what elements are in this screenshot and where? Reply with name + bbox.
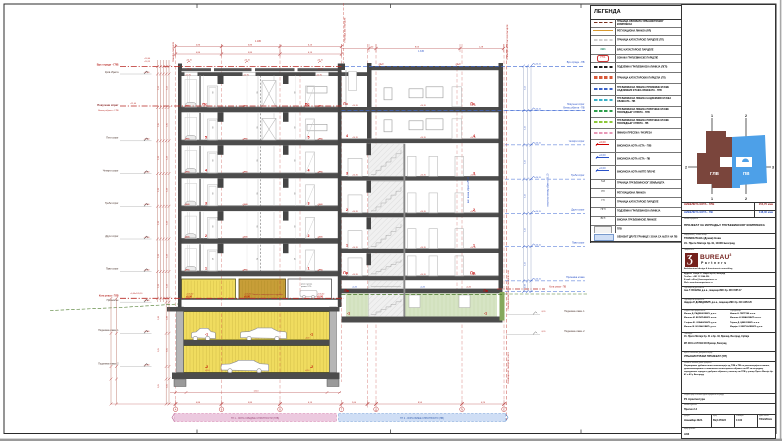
svg-text:-1: -1 <box>347 312 350 316</box>
svg-text:+14,35: +14,35 <box>420 274 426 276</box>
svg-text:5,85: 5,85 <box>248 402 253 404</box>
svg-text:±0,00: ±0,00 <box>244 296 251 299</box>
svg-text:+17,85: +17,85 <box>317 204 323 206</box>
svg-text:Врх ограде - ГЛВ: Врх ограде - ГЛВ <box>97 63 119 67</box>
svg-text:8: 8 <box>294 90 296 94</box>
svg-text:4: 4 <box>346 134 348 138</box>
svg-text:-0,45: -0,45 <box>420 287 426 289</box>
svg-text:+12,80: +12,80 <box>144 237 150 239</box>
svg-text:+24,40: +24,40 <box>144 58 151 60</box>
svg-text:+17,85: +17,85 <box>317 171 323 173</box>
svg-text:ГРАНИЦА КАТАСТАРСКЕ ПАРЦЕЛЕ: ГРАНИЦА КАТАСТАРСКЕ ПАРЦЕЛЕ <box>506 24 509 60</box>
svg-text:+14,35: +14,35 <box>470 175 476 177</box>
svg-text:+22,95: +22,95 <box>243 74 249 76</box>
svg-text:±0,00: ±0,00 <box>317 296 324 299</box>
svg-text:2: 2 <box>745 114 747 118</box>
svg-text:+24,15: +24,15 <box>535 244 542 246</box>
svg-text:+24,15: +24,15 <box>535 177 542 179</box>
svg-text:3,05: 3,05 <box>158 384 160 388</box>
svg-text:-1: -1 <box>310 333 313 337</box>
svg-text:4,86: 4,86 <box>196 402 201 404</box>
svg-text:Кота улаза - ПВ: Кота улаза - ПВ <box>549 287 566 289</box>
svg-text:8: 8 <box>212 159 214 163</box>
svg-text:+14,35: +14,35 <box>470 247 476 249</box>
svg-text:Пр: Пр <box>343 271 349 275</box>
svg-text:8: 8 <box>294 192 296 196</box>
svg-text:+24,15: +24,15 <box>144 61 151 63</box>
svg-text:3,10: 3,10 <box>525 262 527 266</box>
svg-text:Пети спрат: Пети спрат <box>106 137 119 140</box>
svg-text:Кота улаза - ГЛВ: Кота улаза - ГЛВ <box>99 295 119 298</box>
svg-text:+17,85: +17,85 <box>242 171 248 173</box>
svg-text:2: 2 <box>205 234 207 238</box>
svg-text:+12,80: +12,80 <box>144 300 150 302</box>
svg-text:+105,30: +105,30 <box>244 294 252 296</box>
svg-text:3,10: 3,10 <box>525 126 527 130</box>
svg-text:8: 8 <box>212 90 214 94</box>
svg-text:+17,85: +17,85 <box>184 138 190 140</box>
svg-text:ГРАНИЦА КАТАСТАРСКЕ ПАРЦЕЛЕ 24: ГРАНИЦА КАТАСТАРСКЕ ПАРЦЕЛЕ 2401 <box>507 269 510 310</box>
svg-text:+12,80: +12,80 <box>144 204 150 206</box>
svg-text:3,28: 3,28 <box>167 156 169 160</box>
svg-text:Трећи спрат: Трећи спрат <box>571 174 585 177</box>
svg-text:1: 1 <box>205 267 207 271</box>
svg-text:+17,85: +17,85 <box>242 237 248 239</box>
svg-text:3,28: 3,28 <box>158 254 160 258</box>
svg-text:3,10: 3,10 <box>525 228 527 232</box>
svg-text:ПВ: ПВ <box>743 171 750 176</box>
svg-text:6,15: 6,15 <box>308 44 313 46</box>
svg-text:4,86: 4,86 <box>196 52 201 54</box>
svg-text:6,15: 6,15 <box>308 402 313 404</box>
svg-text:-0,45: -0,45 <box>352 287 358 289</box>
svg-text:-3,20: -3,20 <box>541 311 545 313</box>
svg-text:3,28: 3,28 <box>158 188 160 192</box>
svg-text:+0,00=105,30: +0,00=105,30 <box>130 293 143 295</box>
svg-text:1: 1 <box>346 244 348 248</box>
svg-text:8: 8 <box>212 192 214 196</box>
svg-text:2,60: 2,60 <box>352 402 357 404</box>
svg-text:ГРАНИЦА ПАРЦЕЛЕ: ГРАНИЦА ПАРЦЕЛЕ <box>172 41 175 62</box>
svg-text:рампа 12%: рампа 12% <box>301 286 312 288</box>
svg-text:+17,85: +17,85 <box>242 204 248 206</box>
svg-text:+14,35: +14,35 <box>470 105 476 107</box>
svg-text:4: 4 <box>205 169 207 173</box>
svg-text:+14,35: +14,35 <box>470 211 476 213</box>
svg-text:3: 3 <box>346 171 348 175</box>
svg-text:Приземље: Приземље <box>107 299 120 302</box>
svg-text:Пв: Пв <box>483 289 488 293</box>
svg-text:+14,35: +14,35 <box>352 175 358 177</box>
svg-text:Трећи спрат: Трећи спрат <box>105 202 119 205</box>
svg-text:+24,15: +24,15 <box>535 64 542 66</box>
svg-text:±0,00: ±0,00 <box>186 296 193 299</box>
svg-text:2: 2 <box>346 208 348 212</box>
svg-text:3,28: 3,28 <box>158 221 160 225</box>
svg-text:+14,35: +14,35 <box>352 137 358 139</box>
svg-text:5: 5 <box>308 136 310 140</box>
svg-text:8: 8 <box>294 126 296 130</box>
svg-text:1: 1 <box>308 267 310 271</box>
svg-text:2,95: 2,95 <box>167 123 169 127</box>
svg-text:5,85: 5,85 <box>248 52 253 54</box>
svg-text:+14,35: +14,35 <box>420 175 426 177</box>
svg-text:ГРАНИЦА КАТ. ПАРЦЕЛЕ: ГРАНИЦА КАТ. ПАРЦЕЛЕ <box>343 17 346 42</box>
svg-text:3,10: 3,10 <box>525 160 527 164</box>
svg-text:+12,80: +12,80 <box>144 269 150 271</box>
svg-text:+17,85: +17,85 <box>184 204 190 206</box>
svg-text:+14,35: +14,35 <box>352 211 358 213</box>
svg-text:+22,95: +22,95 <box>186 68 192 70</box>
svg-text:+17,85: +17,85 <box>184 237 190 239</box>
svg-text:1.345: 1.345 <box>418 51 424 53</box>
svg-text:ГРАНИЦА КАТ. ПАРЦЕЛЕ 2401/1: ГРАНИЦА КАТ. ПАРЦЕЛЕ 2401/1 <box>507 351 510 384</box>
svg-text:Врх ограде - ПВ: Врх ограде - ПВ <box>567 61 585 64</box>
svg-text:3,28: 3,28 <box>167 188 169 192</box>
svg-text:8: 8 <box>294 224 296 228</box>
svg-text:Венац објекта - ГЛВ: Венац објекта - ГЛВ <box>98 109 119 112</box>
svg-text:+22,95: +22,95 <box>244 68 250 70</box>
svg-text:1.180: 1.180 <box>255 40 262 43</box>
svg-text:5,85: 5,85 <box>248 44 253 46</box>
svg-text:+12,80: +12,80 <box>144 171 150 173</box>
svg-text:Четврти спрат: Четврти спрат <box>103 169 120 172</box>
svg-text:+12,80: +12,80 <box>144 331 150 333</box>
svg-text:+24,15: +24,15 <box>535 211 542 213</box>
svg-text:3,53: 3,53 <box>158 86 160 90</box>
svg-text:ГП 2 - ЗОНА ВИШЕ СПРАТНОСТИ: ГП 2 - ЗОНА ВИШЕ СПРАТНОСТИ (ПВ) <box>400 417 444 420</box>
svg-text:+17,85: +17,85 <box>184 269 190 271</box>
svg-text:-6,10: -6,10 <box>305 370 309 372</box>
svg-text:-3,20: -3,20 <box>541 331 545 333</box>
svg-text:4: 4 <box>308 169 310 173</box>
svg-text:-1: -1 <box>205 333 208 337</box>
svg-text:-1: -1 <box>484 312 487 316</box>
svg-text:вис. венац објекта 25,10: вис. венац објекта 25,10 <box>467 176 470 203</box>
svg-text:+24,15: +24,15 <box>535 108 542 110</box>
svg-text:+17,85: +17,85 <box>184 171 190 173</box>
svg-text:2,88: 2,88 <box>158 316 160 320</box>
svg-text:Кров објекта: Кров објекта <box>105 71 119 74</box>
svg-text:3,05: 3,05 <box>158 348 160 352</box>
svg-text:Венац објекта - ПВ: Венац објекта - ПВ <box>563 107 584 110</box>
svg-text:Подземна етажа -2: Подземна етажа -2 <box>564 331 585 333</box>
svg-text:Ђ: Ђ <box>461 408 463 411</box>
svg-text:+14,35: +14,35 <box>352 105 358 107</box>
svg-text:висински венац објекта 25,10: висински венац објекта 25,10 <box>547 173 550 206</box>
svg-text:Повучени спрат: Повучени спрат <box>97 103 119 107</box>
svg-text:Подземна етажа -2: Подземна етажа -2 <box>98 363 119 365</box>
svg-text:+21,40: +21,40 <box>130 103 137 105</box>
svg-text:-6,10: -6,10 <box>205 370 209 372</box>
svg-text:Приземна етажа: Приземна етажа <box>566 276 585 279</box>
svg-text:1: 1 <box>711 197 713 201</box>
svg-text:Први спрат: Први спрат <box>106 267 119 270</box>
svg-text:+22,95: +22,95 <box>185 74 191 76</box>
svg-text:5: 5 <box>205 136 207 140</box>
svg-text:Други спрат: Други спрат <box>105 235 119 238</box>
svg-text:Четврти спрат: Четврти спрат <box>569 140 586 143</box>
svg-text:4,20: 4,20 <box>481 402 486 404</box>
svg-text:Први спрат: Први спрат <box>572 242 585 245</box>
svg-text:Помоћни комерцијални садржаји: Помоћни комерцијални садржаји <box>252 293 283 296</box>
svg-text:+22,95: +22,95 <box>317 68 323 70</box>
svg-text:+17,85: +17,85 <box>242 269 248 271</box>
svg-text:3,28: 3,28 <box>158 156 160 160</box>
svg-text:+14,35: +14,35 <box>420 211 426 213</box>
svg-text:Пс: Пс <box>202 103 207 107</box>
svg-text:+14,35: +14,35 <box>470 137 476 139</box>
svg-text:2: 2 <box>745 197 747 201</box>
svg-text:3,28: 3,28 <box>167 284 169 288</box>
svg-text:-0,45: -0,45 <box>466 287 472 289</box>
svg-text:+12,80: +12,80 <box>144 139 150 141</box>
svg-text:+105,30: +105,30 <box>317 294 325 296</box>
svg-text:8,55: 8,55 <box>415 46 420 48</box>
svg-text:+14,35: +14,35 <box>352 247 358 249</box>
svg-text:3: 3 <box>308 201 310 205</box>
svg-text:Подземна етажа -1: Подземна етажа -1 <box>564 311 585 313</box>
svg-text:8: 8 <box>212 224 214 228</box>
svg-text:+24,15: +24,15 <box>535 279 542 281</box>
svg-text:2,95: 2,95 <box>158 123 160 127</box>
svg-text:ГЛВ: ГЛВ <box>710 171 720 176</box>
svg-text:3: 3 <box>772 166 774 170</box>
svg-text:3,10: 3,10 <box>525 194 527 198</box>
svg-text:4,86: 4,86 <box>196 44 201 46</box>
svg-text:3: 3 <box>205 201 207 205</box>
svg-text:8,55: 8,55 <box>418 402 423 404</box>
svg-text:+14,35: +14,35 <box>420 247 426 249</box>
svg-text:8: 8 <box>212 257 214 261</box>
svg-text:Подземна етажа -1: Подземна етажа -1 <box>98 330 119 332</box>
svg-text:+24,15: +24,15 <box>535 143 542 145</box>
svg-text:1: 1 <box>711 114 713 118</box>
svg-text:Други спрат: Други спрат <box>571 208 585 211</box>
svg-text:3,53: 3,53 <box>525 86 527 90</box>
svg-text:+17,85: +17,85 <box>317 138 323 140</box>
svg-text:+17,85: +17,85 <box>242 138 248 140</box>
svg-text:3,53: 3,53 <box>167 86 169 90</box>
svg-text:0,98: 0,98 <box>525 284 527 288</box>
svg-text:+12,80: +12,80 <box>144 72 150 74</box>
svg-text:3,28: 3,28 <box>167 221 169 225</box>
svg-text:+14,35: +14,35 <box>352 274 358 276</box>
svg-text:+22,95: +22,95 <box>316 74 322 76</box>
svg-text:8: 8 <box>294 257 296 261</box>
svg-text:+17,85: +17,85 <box>317 269 323 271</box>
svg-text:ГП 1 - ЗОНА СРЕДЊЕ СПРАТНОСТ: ГП 1 - ЗОНА СРЕДЊЕ СПРАТНОСТИ (ГЛВ) <box>231 417 280 420</box>
svg-text:+14,35: +14,35 <box>420 105 426 107</box>
svg-text:8: 8 <box>212 126 214 130</box>
svg-text:+14,35: +14,35 <box>470 274 476 276</box>
svg-text:1,28: 1,28 <box>479 46 484 48</box>
svg-text:Повучени спрат: Повучени спрат <box>567 103 585 106</box>
svg-text:14,10: 14,10 <box>253 390 259 392</box>
svg-text:3,05: 3,05 <box>167 348 169 352</box>
svg-text:2: 2 <box>685 166 687 170</box>
svg-text:6,15: 6,15 <box>308 52 313 54</box>
svg-text:2,88: 2,88 <box>167 316 169 320</box>
svg-text:+105,30: +105,30 <box>186 294 194 296</box>
svg-text:3,28: 3,28 <box>167 254 169 258</box>
svg-text:-2: -2 <box>205 365 208 369</box>
svg-text:-2: -2 <box>310 365 313 369</box>
svg-text:+17,85: +17,85 <box>317 237 323 239</box>
svg-text:60: 60 <box>371 46 374 48</box>
svg-text:+14,35: +14,35 <box>420 137 426 139</box>
svg-text:-3,20: -3,20 <box>305 337 309 339</box>
svg-text:2: 2 <box>308 234 310 238</box>
svg-text:8: 8 <box>294 159 296 163</box>
svg-text:3,28: 3,28 <box>158 284 160 288</box>
svg-text:3,05: 3,05 <box>167 384 169 388</box>
svg-text:+12,80: +12,80 <box>144 364 150 366</box>
svg-text:Пв: Пв <box>344 289 349 293</box>
